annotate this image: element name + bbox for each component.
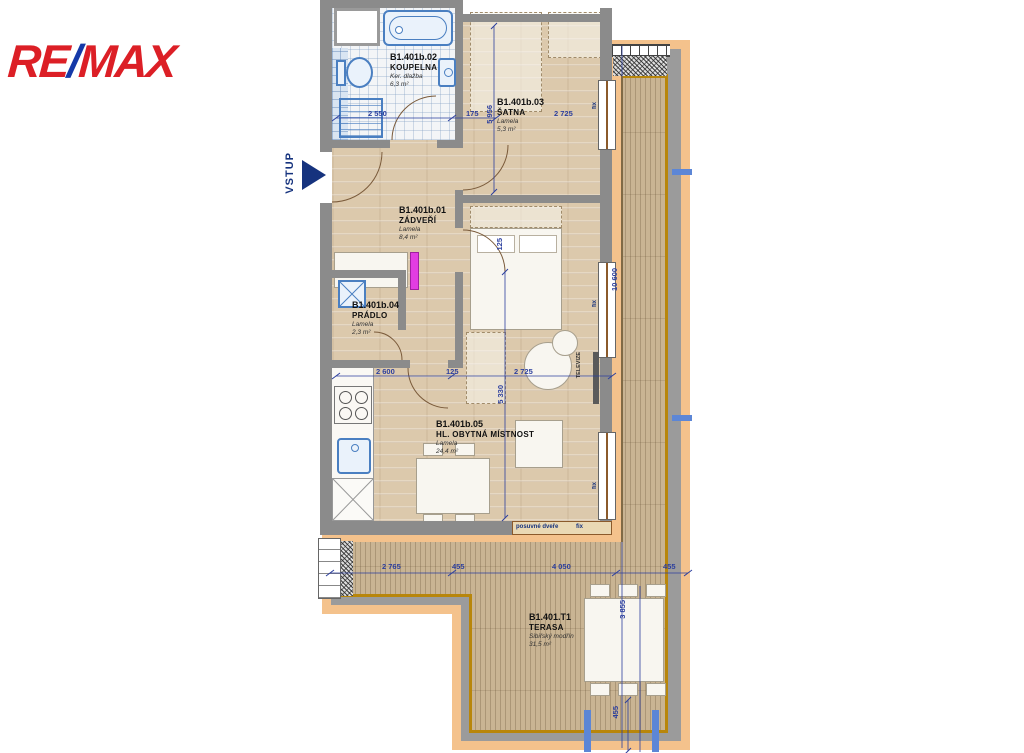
washbasin-icon: [438, 58, 456, 87]
partition-pradlo-top: [332, 270, 398, 278]
wall-top-right: [455, 14, 612, 22]
partition-v1b: [455, 190, 463, 228]
entrance-label: VSTUP: [284, 152, 296, 194]
survey-tick: [584, 710, 591, 752]
kitchen-sink-icon: [337, 438, 371, 474]
tv-icon: [593, 352, 599, 404]
room-label-koupelna: B1.401b.02 KOUPELNA Ker. dlažba 6,3 m²: [390, 52, 437, 90]
terrace-chair: [590, 683, 610, 696]
dim-label: 455: [611, 706, 620, 719]
fix-label: fix: [592, 102, 598, 109]
cooktop-icon: [334, 386, 372, 424]
corner-window: [318, 538, 341, 599]
sliding-door-label: posuvné dveře: [516, 524, 558, 530]
room-label-pradlo: B1.401b.04 PRÁDLO Lamela 2,3 m²: [352, 300, 399, 338]
room-label-obytna-mistnost: B1.401b.05 HL. OBYTNÁ MÍSTNOST Lamela 24…: [436, 419, 534, 457]
dim-label: 10 600: [610, 268, 619, 291]
window-fix-living: [598, 432, 616, 520]
wall-left-upper: [320, 0, 332, 152]
dim-label: 5 330: [496, 385, 505, 404]
side-table-round: [552, 330, 578, 356]
dim-label: 125: [495, 238, 504, 251]
kitchen-cabinet: [332, 478, 374, 521]
terrace-chair: [646, 683, 666, 696]
survey-tick: [672, 169, 692, 175]
wall-right-seg3: [600, 356, 612, 432]
towel-radiator-icon: [339, 98, 383, 138]
bathtub-icon: [383, 10, 453, 46]
dim-label: 2 765: [382, 562, 401, 571]
floorplan-page: RE/MAX: [0, 0, 1024, 753]
terrace-chair: [646, 584, 666, 597]
dim-label: 455: [663, 562, 676, 571]
room-label-zadveri: B1.401b.01 ZÁDVEŘÍ Lamela 8,4 m²: [399, 205, 446, 243]
tv-label: TELEVIZE: [576, 352, 582, 378]
partition-bath-b: [437, 140, 463, 148]
dim-label: 2 550: [368, 109, 387, 118]
partition-satna-bottom: [463, 195, 612, 203]
electrical-cabinet-icon: [410, 252, 419, 290]
partition-v1c: [455, 272, 463, 368]
remax-logo: RE/MAX: [6, 34, 177, 88]
terrace-chair: [618, 683, 638, 696]
toilet-tank: [336, 60, 346, 86]
dim-label: 5 956: [485, 105, 494, 124]
dim-label: 2 725: [554, 109, 573, 118]
dining-table: [416, 458, 490, 514]
dim-label: 2 600: [376, 367, 395, 376]
gravel-strip-left: [339, 541, 353, 596]
partition-living-a: [332, 360, 410, 368]
dim-label: 3 855: [618, 600, 627, 619]
dim-label: 125: [446, 367, 459, 376]
bed: [470, 228, 562, 330]
room-label-terasa: B1.401.T1 TERASA Sibiřský modřín 31,5 m²: [529, 612, 574, 650]
terrace-chair: [590, 584, 610, 597]
terrace-chair: [618, 584, 638, 597]
window-fix-satna: [598, 80, 616, 150]
logo-max: MAX: [77, 35, 177, 87]
fix-label: fix: [576, 524, 583, 530]
headboard-shelf: [470, 206, 562, 228]
survey-tick: [672, 415, 692, 421]
toilet-icon: [346, 57, 373, 88]
partition-bath-a: [332, 140, 390, 148]
partition-v1a: [455, 8, 463, 145]
dim-label: 4 050: [552, 562, 571, 571]
wall-bottom: [320, 521, 512, 535]
room-label-satna: B1.401b.03 ŠATNA Lamela 5,3 m²: [497, 97, 544, 135]
wall-top-left: [320, 0, 463, 8]
dim-label: 2 725: [514, 367, 533, 376]
logo-re: RE: [6, 35, 70, 87]
fix-label: fix: [592, 482, 598, 489]
wall-right-seg1: [600, 8, 612, 80]
gravel-strip: [613, 56, 667, 76]
fix-label: fix: [592, 300, 598, 307]
partition-pradlo-right: [398, 270, 406, 330]
entrance-arrow-icon: [302, 160, 326, 190]
survey-tick: [652, 710, 659, 752]
wall-left-lower: [320, 203, 332, 535]
bathroom-niche: [334, 8, 380, 46]
wall-right-seg2: [600, 148, 612, 262]
dim-label: 455: [452, 562, 465, 571]
dim-label: 175: [466, 109, 479, 118]
